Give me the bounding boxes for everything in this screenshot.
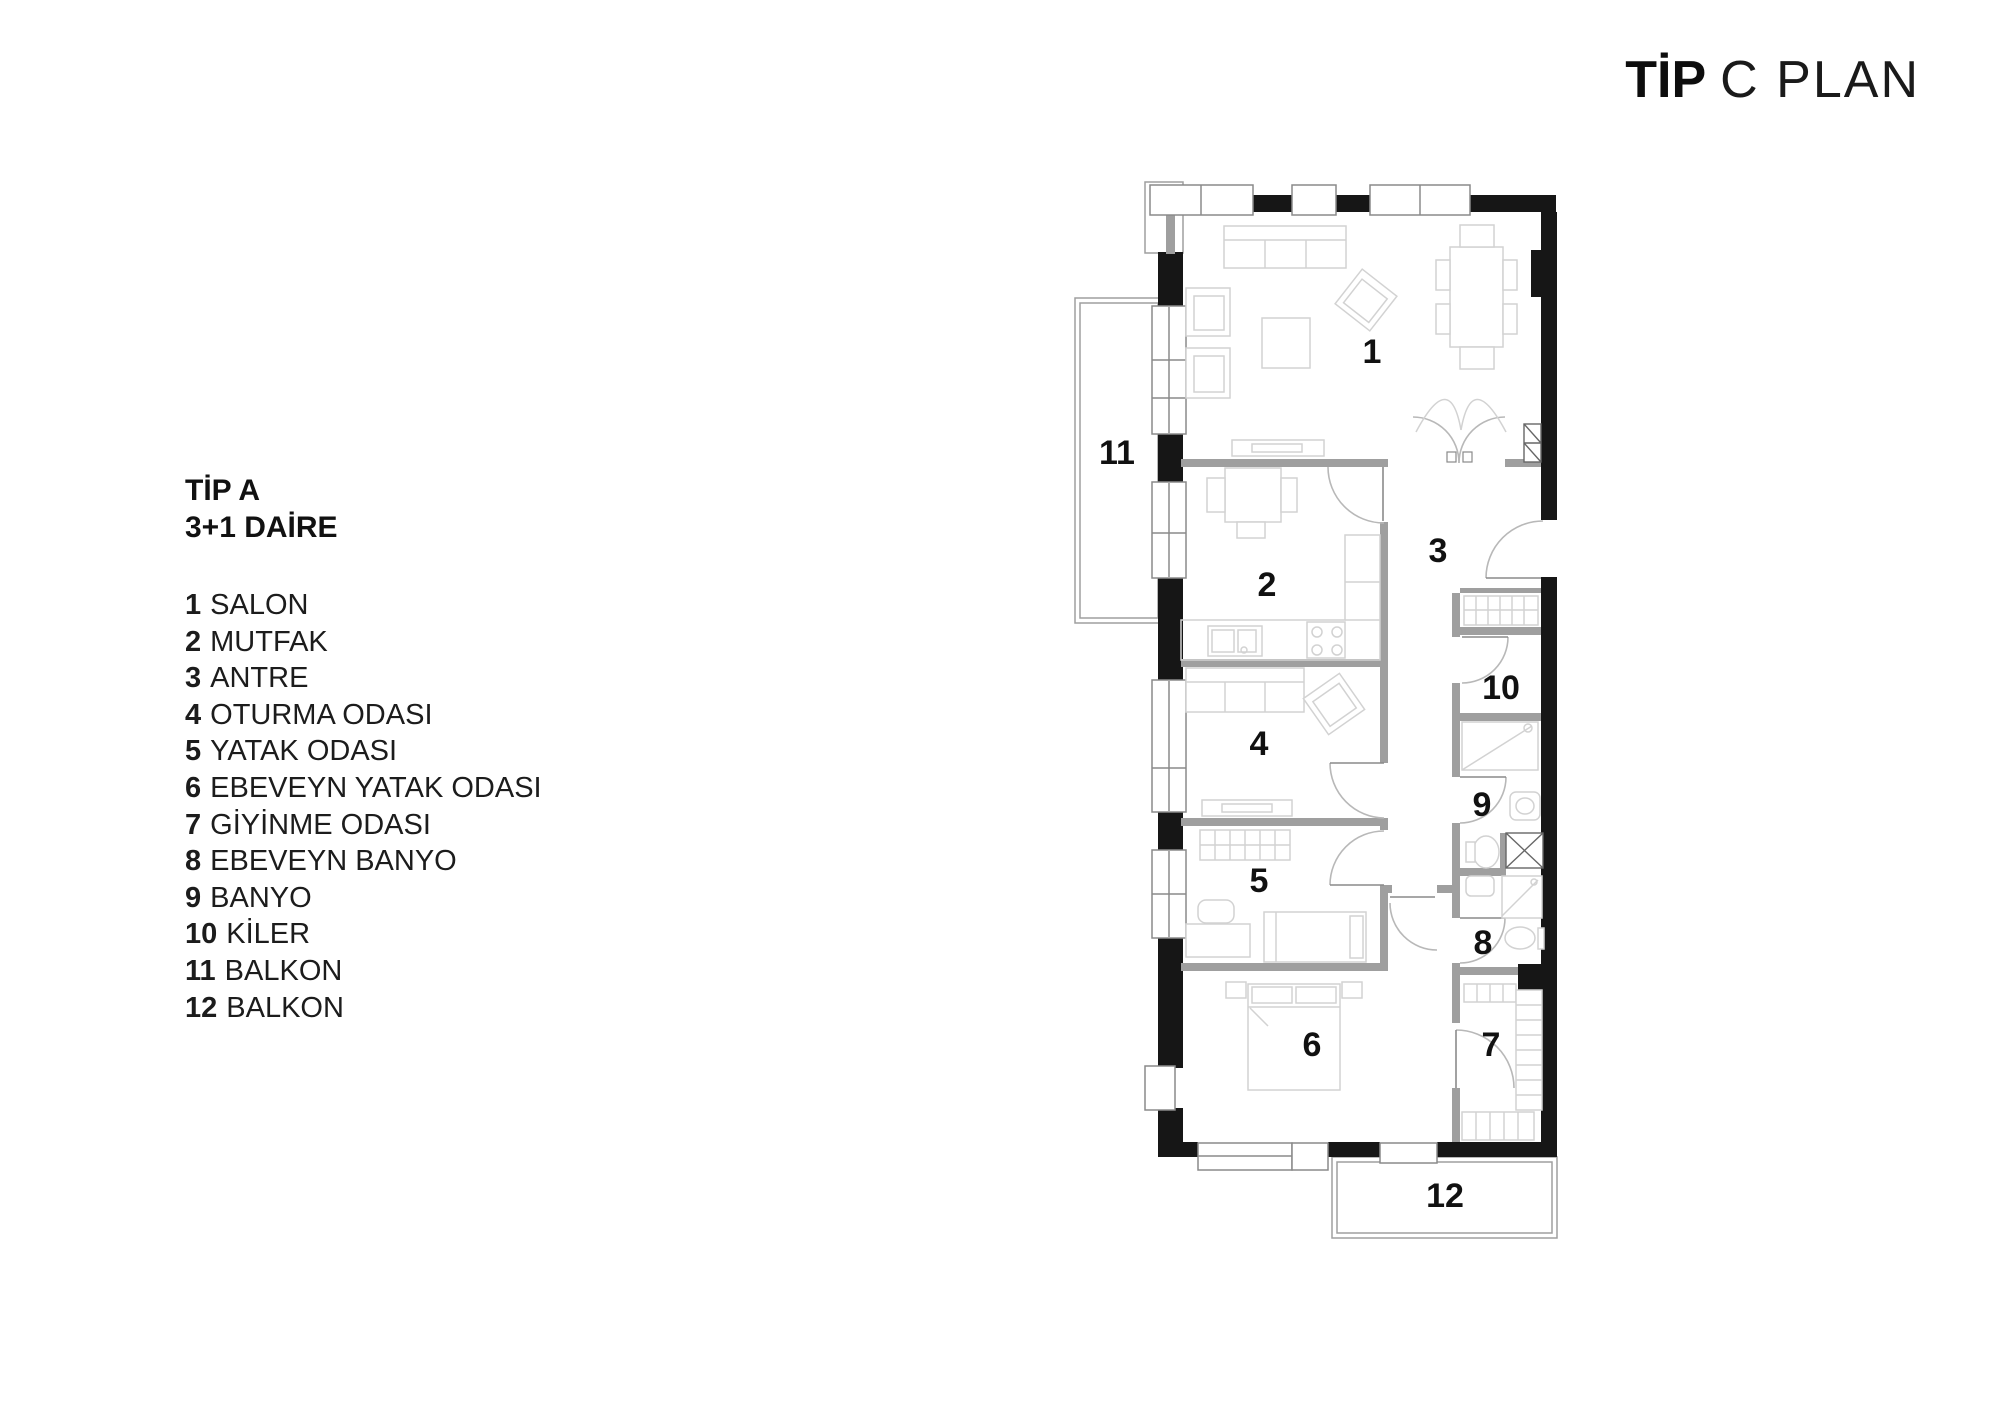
window-top-2: [1292, 185, 1336, 215]
kitchen-furniture: [1181, 468, 1380, 660]
wardrobe: [1462, 1112, 1534, 1140]
accent-chair: [1335, 269, 1397, 331]
sofa: [1224, 226, 1346, 268]
kitchen-chair: [1281, 478, 1297, 512]
kitchen-table: [1225, 468, 1281, 522]
desk: [1186, 924, 1250, 957]
bedroom-furniture: [1186, 830, 1366, 962]
washbasin: [1466, 876, 1494, 896]
room-label-kiler: 10: [1482, 669, 1520, 707]
dining-chair: [1436, 260, 1450, 290]
window-bottom-2: [1292, 1143, 1328, 1170]
room-label-balkon-11: 11: [1099, 434, 1135, 472]
room-label-balkon-12: 12: [1426, 1177, 1464, 1215]
accent-chair: [1303, 673, 1364, 734]
sofa: [1186, 668, 1304, 712]
room-label-ebeveyn-banyo: 8: [1474, 924, 1493, 962]
coffee-table: [1262, 318, 1310, 368]
dining-chair: [1436, 304, 1450, 334]
pillow: [1252, 987, 1292, 1003]
toilet: [1473, 836, 1499, 868]
room-label-mutfak: 2: [1258, 566, 1277, 604]
room-label-banyo: 9: [1473, 786, 1492, 824]
room-label-giyinme-odasi: 7: [1482, 1026, 1501, 1064]
desk-chair: [1198, 900, 1234, 923]
pillow: [1350, 916, 1363, 958]
dressing-room-furniture: [1462, 984, 1542, 1140]
hall-door: [1390, 897, 1437, 950]
toilet-tank: [1538, 928, 1544, 949]
service-shaft-hatch: [1506, 833, 1543, 868]
room-label-yatak-odasi: 5: [1250, 862, 1269, 900]
dining-chair: [1460, 225, 1494, 247]
living-room-furniture: [1186, 225, 1517, 456]
page: { "title": { "type": "TİP", "plan": "C P…: [0, 0, 2000, 1414]
nightstand: [1226, 982, 1246, 998]
plant: [1416, 399, 1461, 432]
washbasin: [1510, 792, 1540, 820]
kitchen-chair: [1237, 522, 1265, 538]
pillow: [1296, 987, 1336, 1003]
living-room-double-door: [1413, 417, 1505, 463]
sitting-room-door: [1330, 763, 1384, 818]
kitchen-door: [1328, 467, 1384, 523]
nightstand: [1342, 982, 1362, 998]
floor-plan: 1 2 3 4 5 6 7 8 9 10 11 12: [0, 0, 2000, 1414]
master-bedroom-furniture: [1226, 982, 1362, 1090]
plant: [1461, 399, 1506, 432]
window-left-5: [1145, 1066, 1175, 1110]
entry-shaft-hatch: [1524, 424, 1541, 462]
dining-table: [1450, 247, 1503, 347]
room-label-salon: 1: [1363, 333, 1382, 371]
pantry-shelf: [1464, 596, 1538, 625]
room-label-ebeveyn-yatak: 6: [1303, 1026, 1322, 1064]
toilet: [1505, 927, 1535, 949]
room-label-oturma-odasi: 4: [1250, 725, 1269, 763]
entrance-door: [1486, 521, 1543, 578]
toilet-tank: [1466, 842, 1475, 862]
balcony-door-unit: [1380, 1143, 1437, 1163]
sitting-room-furniture: [1186, 668, 1365, 816]
room-label-antre: 3: [1429, 532, 1448, 570]
bedroom-door: [1330, 831, 1384, 885]
kitchen-chair: [1207, 478, 1225, 512]
dining-chair: [1503, 260, 1517, 290]
dining-chair: [1460, 347, 1494, 369]
dining-chair: [1503, 304, 1517, 334]
